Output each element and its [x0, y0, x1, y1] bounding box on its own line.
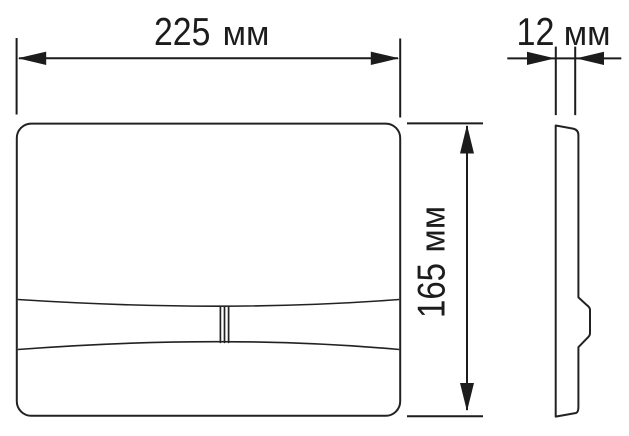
- svg-text:мм: мм: [415, 206, 453, 253]
- svg-text:12: 12: [517, 11, 555, 54]
- svg-text:мм: мм: [223, 15, 270, 53]
- svg-text:225: 225: [154, 11, 210, 54]
- svg-text:мм: мм: [564, 15, 611, 53]
- svg-text:165: 165: [411, 263, 454, 318]
